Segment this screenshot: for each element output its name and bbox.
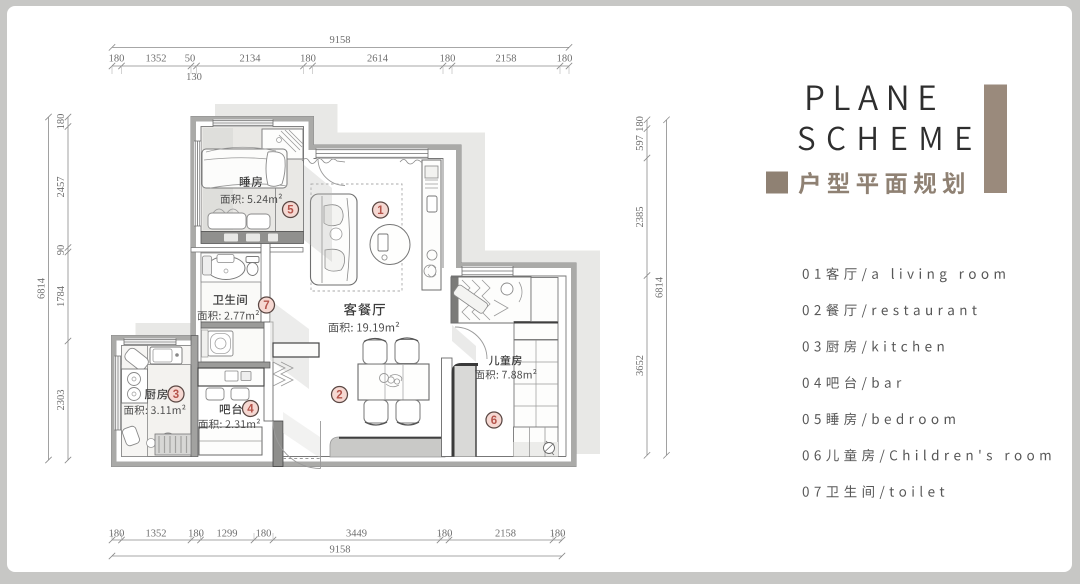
svg-text:1352: 1352 (146, 529, 167, 540)
svg-text:1352: 1352 (146, 54, 167, 65)
svg-text:597: 597 (635, 135, 646, 151)
svg-text:180: 180 (300, 54, 316, 65)
svg-text:180: 180 (550, 529, 566, 540)
svg-text:180: 180 (557, 54, 573, 65)
svg-text:180: 180 (56, 114, 67, 130)
svg-text:6814: 6814 (655, 276, 666, 298)
svg-text:2303: 2303 (56, 390, 67, 411)
svg-text:6814: 6814 (37, 277, 48, 299)
svg-text:2457: 2457 (56, 177, 67, 198)
svg-text:2614: 2614 (367, 54, 389, 65)
svg-text:180: 180 (109, 529, 125, 540)
svg-text:130: 130 (186, 72, 202, 83)
svg-text:9158: 9158 (330, 35, 351, 46)
svg-text:2134: 2134 (240, 54, 262, 65)
svg-text:1: 1 (377, 205, 384, 217)
svg-text:4: 4 (247, 404, 254, 416)
svg-text:180: 180 (256, 529, 272, 540)
svg-text:180: 180 (109, 54, 125, 65)
svg-text:3652: 3652 (635, 355, 646, 376)
svg-text:90: 90 (56, 245, 67, 256)
svg-text:3449: 3449 (346, 529, 367, 540)
svg-text:2: 2 (336, 390, 342, 402)
svg-text:180: 180 (635, 116, 646, 132)
svg-text:50: 50 (185, 54, 196, 65)
svg-text:180: 180 (188, 529, 204, 540)
svg-text:7: 7 (263, 300, 269, 312)
svg-text:1299: 1299 (217, 529, 238, 540)
svg-text:2158: 2158 (496, 54, 517, 65)
svg-text:3: 3 (173, 389, 179, 401)
svg-text:2385: 2385 (635, 207, 646, 228)
svg-text:2158: 2158 (495, 529, 516, 540)
svg-text:6: 6 (491, 415, 497, 427)
svg-text:180: 180 (440, 54, 456, 65)
svg-text:1784: 1784 (56, 285, 67, 307)
svg-text:9158: 9158 (330, 545, 351, 556)
svg-text:5: 5 (287, 205, 294, 217)
svg-text:180: 180 (437, 529, 453, 540)
